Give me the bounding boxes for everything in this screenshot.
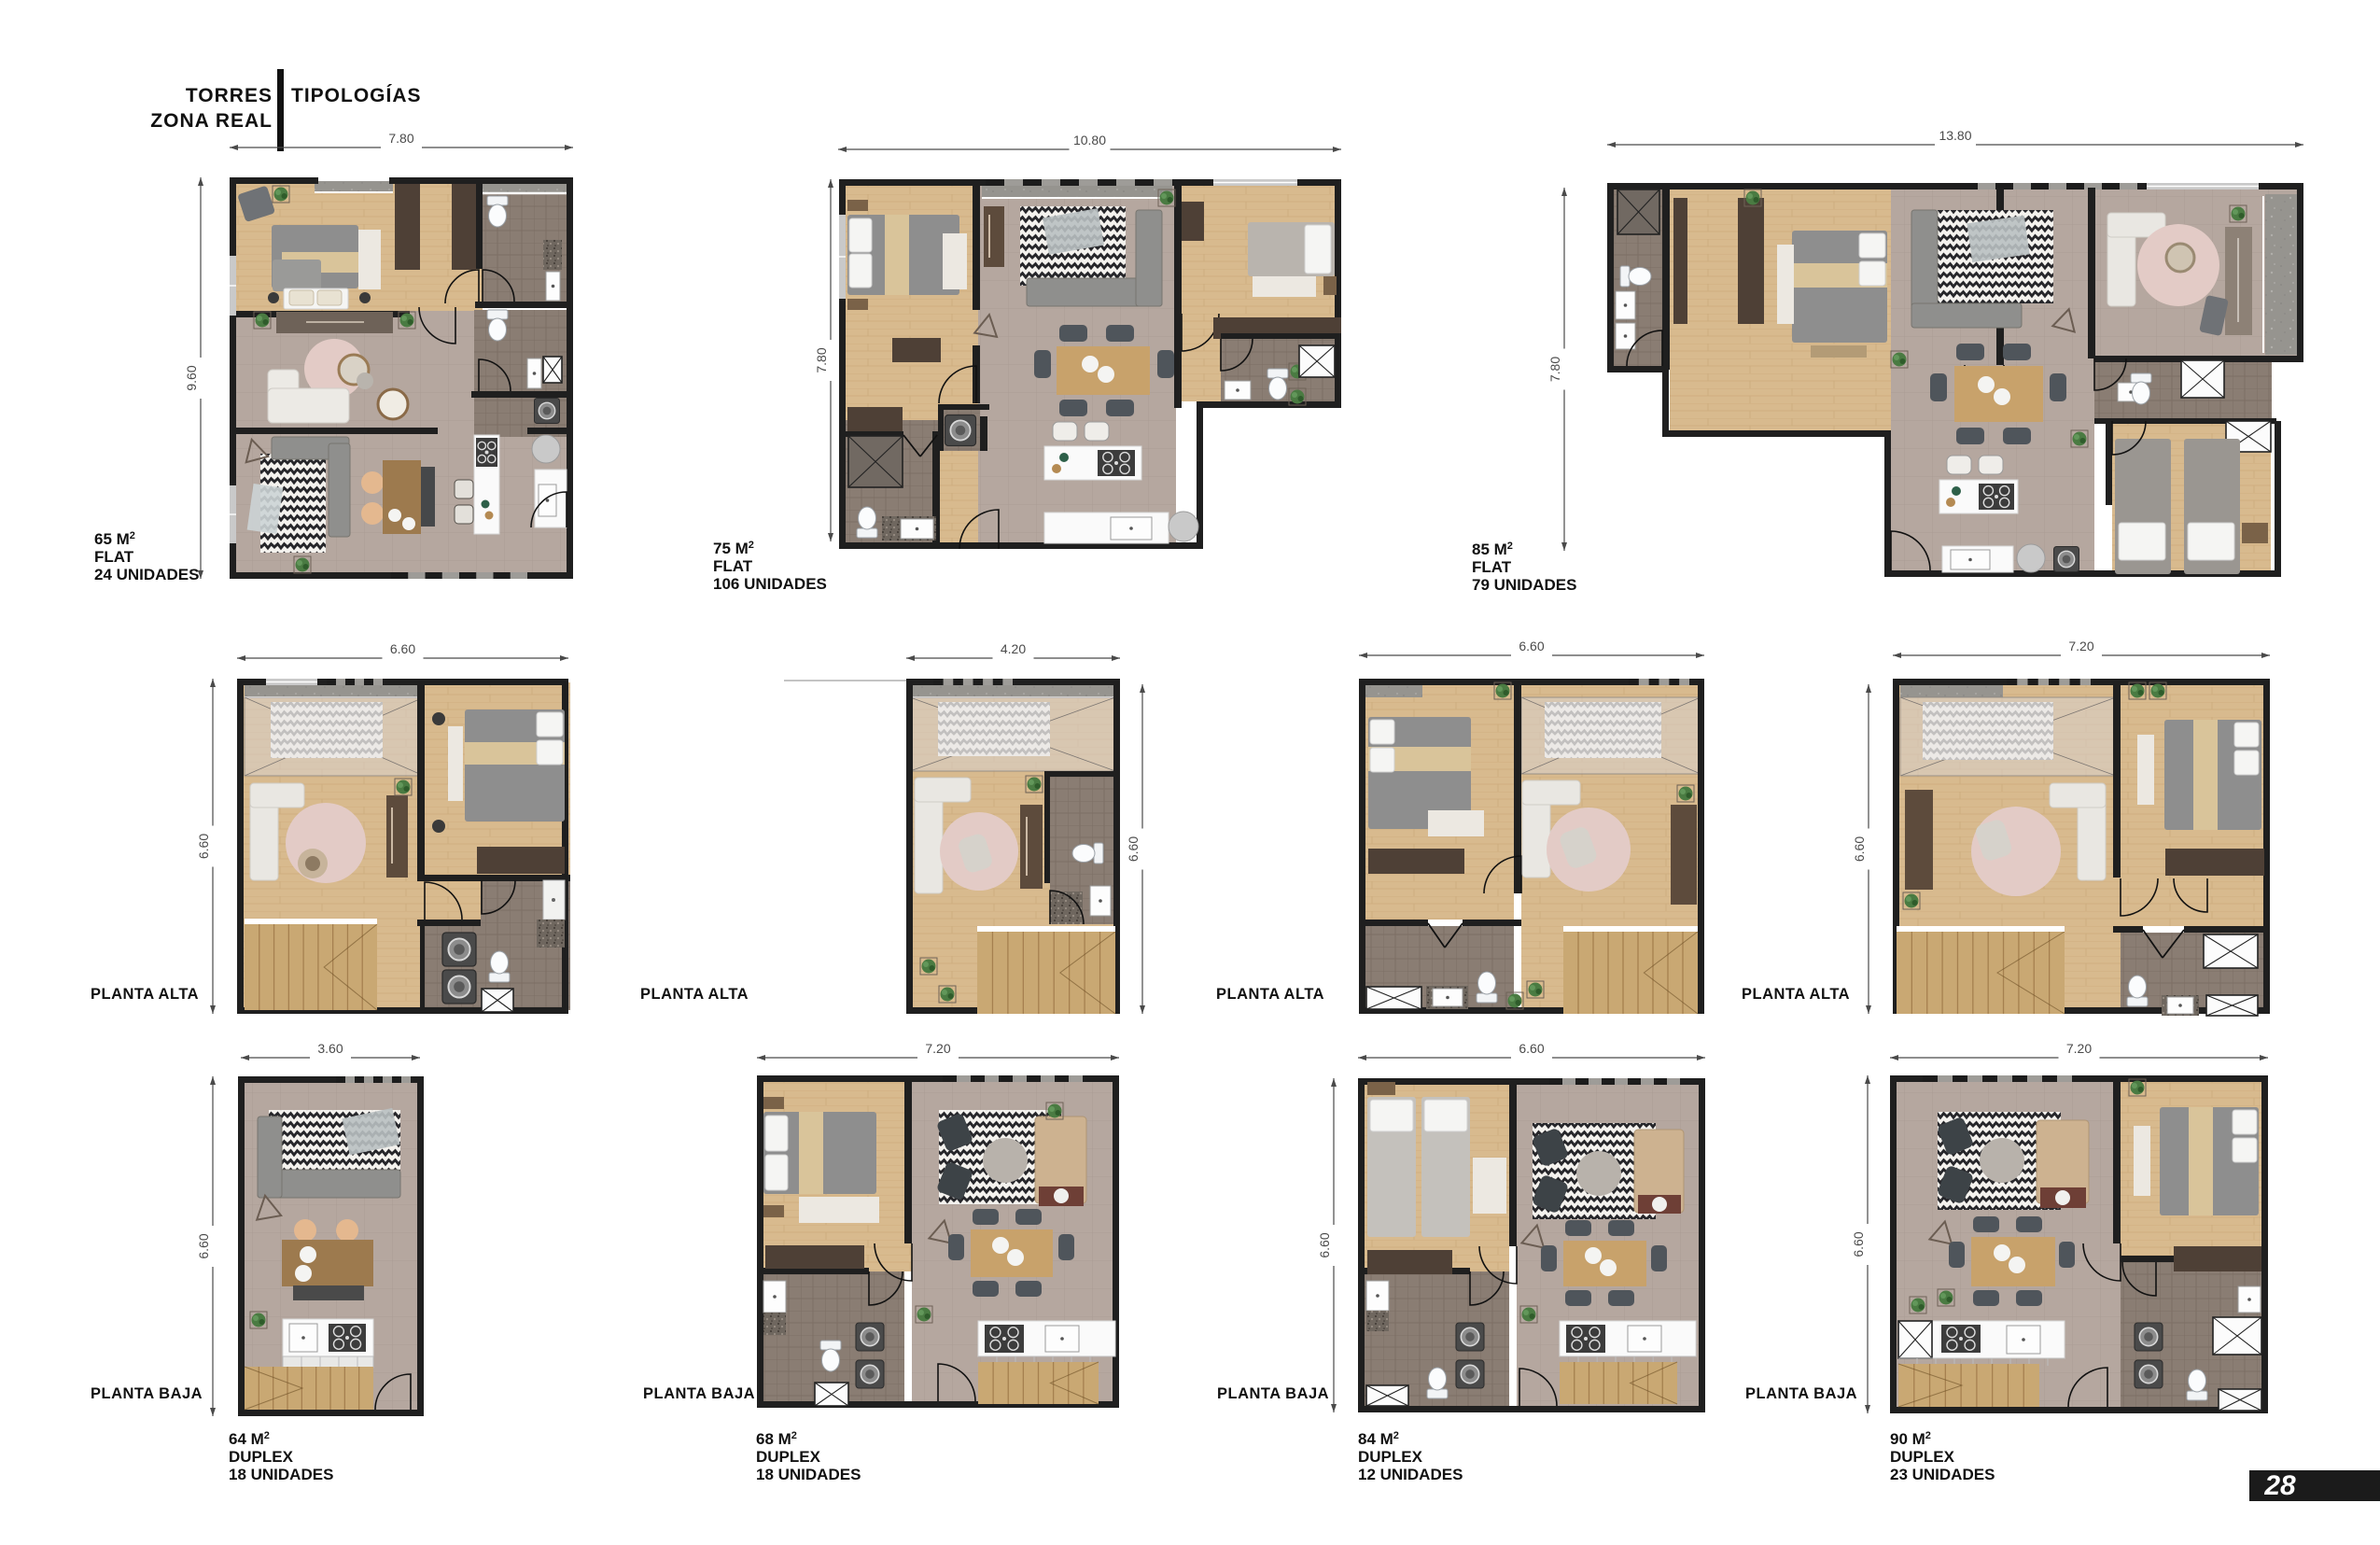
svg-text:6.60: 6.60 <box>390 641 415 656</box>
svg-text:6.60: 6.60 <box>1519 639 1544 653</box>
svg-text:7.80: 7.80 <box>388 131 413 146</box>
svg-text:6.60: 6.60 <box>1126 836 1141 862</box>
svg-text:18 UNIDADES: 18 UNIDADES <box>229 1466 333 1483</box>
svg-text:7.80: 7.80 <box>1547 357 1562 382</box>
svg-text:DUPLEX: DUPLEX <box>1358 1448 1423 1466</box>
svg-text:7.20: 7.20 <box>2068 639 2093 653</box>
svg-text:FLAT: FLAT <box>1472 558 1512 576</box>
svg-text:10.80: 10.80 <box>1073 133 1106 147</box>
svg-text:DUPLEX: DUPLEX <box>1890 1448 1955 1466</box>
svg-text:FLAT: FLAT <box>94 548 134 566</box>
svg-text:DUPLEX: DUPLEX <box>229 1448 294 1466</box>
svg-text:7.20: 7.20 <box>925 1041 950 1056</box>
svg-text:68 M2: 68 M2 <box>756 1430 797 1448</box>
svg-text:79 UNIDADES: 79 UNIDADES <box>1472 576 1576 594</box>
svg-text:TIPOLOGÍAS: TIPOLOGÍAS <box>291 85 422 106</box>
svg-text:PLANTA ALTA: PLANTA ALTA <box>91 986 199 1003</box>
svg-text:84 M2: 84 M2 <box>1358 1430 1399 1448</box>
svg-text:PLANTA BAJA: PLANTA BAJA <box>1217 1385 1329 1402</box>
svg-text:TORRES: TORRES <box>186 85 273 106</box>
svg-text:PLANTA ALTA: PLANTA ALTA <box>1216 986 1324 1003</box>
svg-text:12 UNIDADES: 12 UNIDADES <box>1358 1466 1463 1483</box>
svg-text:9.60: 9.60 <box>184 365 199 390</box>
svg-text:6.60: 6.60 <box>1317 1232 1332 1257</box>
svg-text:85 M2: 85 M2 <box>1472 541 1513 558</box>
svg-text:106 UNIDADES: 106 UNIDADES <box>713 575 827 593</box>
svg-text:ZONA REAL: ZONA REAL <box>150 110 273 132</box>
svg-text:4.20: 4.20 <box>1001 641 1026 656</box>
svg-text:3.60: 3.60 <box>317 1041 343 1056</box>
svg-text:PLANTA BAJA: PLANTA BAJA <box>1745 1385 1857 1402</box>
svg-text:18 UNIDADES: 18 UNIDADES <box>756 1466 861 1483</box>
svg-text:13.80: 13.80 <box>1939 128 1971 143</box>
svg-text:PLANTA ALTA: PLANTA ALTA <box>640 986 749 1003</box>
svg-text:6.60: 6.60 <box>196 834 211 859</box>
svg-text:7.80: 7.80 <box>814 347 829 372</box>
svg-text:64 M2: 64 M2 <box>229 1430 270 1448</box>
svg-text:90 M2: 90 M2 <box>1890 1430 1931 1448</box>
svg-text:65 M2: 65 M2 <box>94 530 135 548</box>
svg-text:PLANTA BAJA: PLANTA BAJA <box>643 1385 755 1402</box>
svg-text:6.60: 6.60 <box>1851 1231 1866 1257</box>
svg-text:PLANTA BAJA: PLANTA BAJA <box>91 1385 203 1402</box>
svg-text:75 M2: 75 M2 <box>713 540 754 557</box>
svg-text:7.20: 7.20 <box>2066 1041 2092 1056</box>
svg-text:6.60: 6.60 <box>1519 1041 1544 1056</box>
svg-text:23 UNIDADES: 23 UNIDADES <box>1890 1466 1995 1483</box>
svg-text:6.60: 6.60 <box>196 1233 211 1258</box>
svg-text:FLAT: FLAT <box>713 557 753 575</box>
svg-text:24 UNIDADES: 24 UNIDADES <box>94 566 199 583</box>
svg-text:6.60: 6.60 <box>1852 836 1867 862</box>
svg-text:PLANTA ALTA: PLANTA ALTA <box>1742 986 1850 1003</box>
svg-text:DUPLEX: DUPLEX <box>756 1448 821 1466</box>
svg-text:28: 28 <box>2263 1470 2296 1501</box>
